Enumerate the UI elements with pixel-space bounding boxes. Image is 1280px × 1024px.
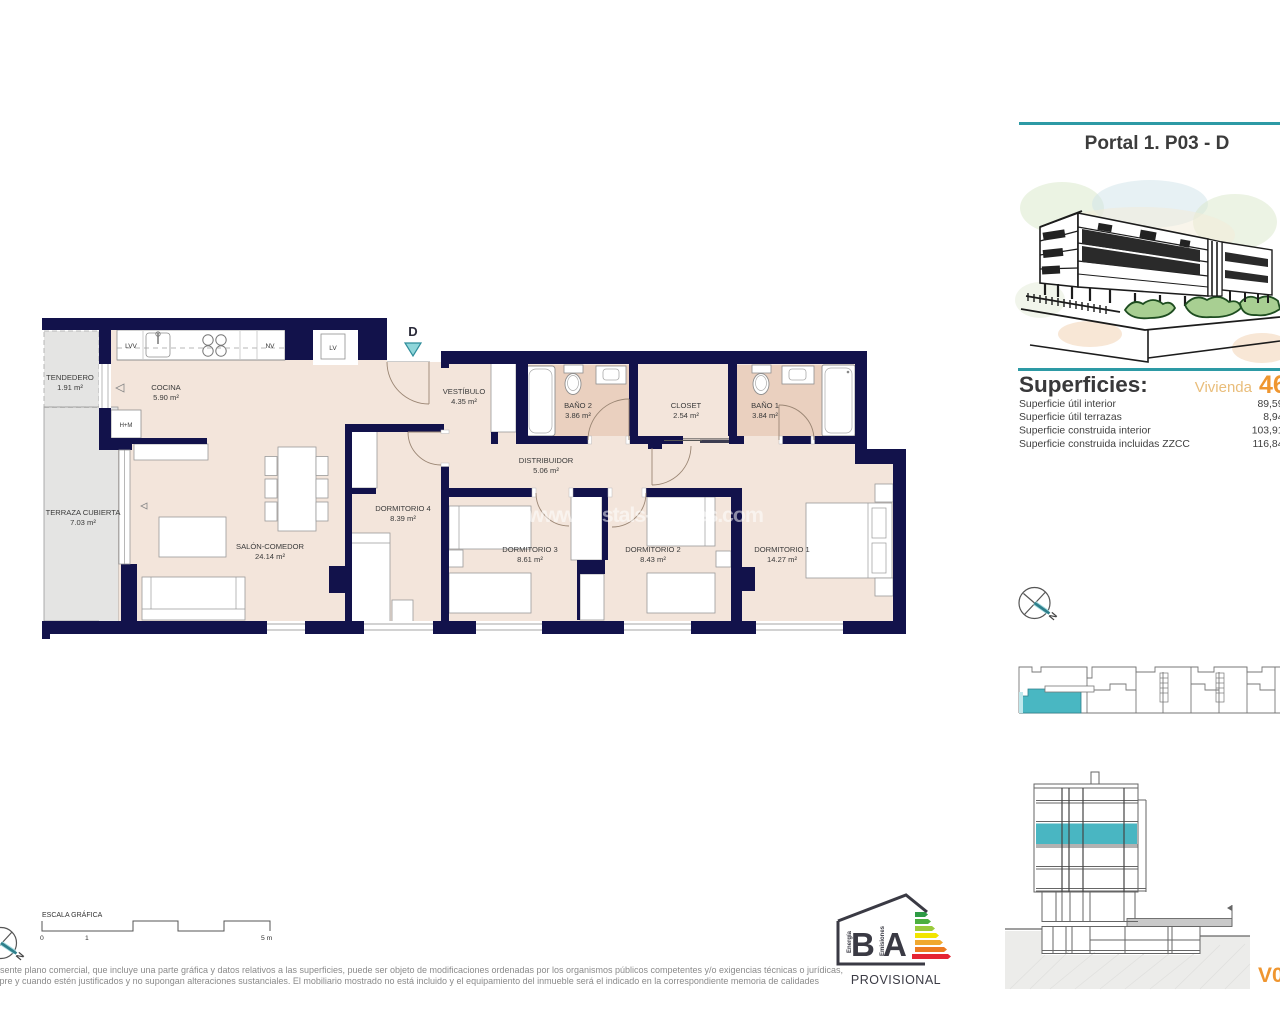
svg-text:Emisiones: Emisiones <box>880 925 886 956</box>
svg-text:resente plano comercial, que i: resente plano comercial, que incluye una… <box>0 965 843 975</box>
svg-text:BAÑO 1: BAÑO 1 <box>751 401 779 410</box>
svg-text:1: 1 <box>85 935 89 942</box>
svg-text:5.90 m²: 5.90 m² <box>153 393 179 402</box>
svg-text:3.86 m²: 3.86 m² <box>565 411 591 420</box>
svg-text:24.14 m²: 24.14 m² <box>255 552 285 561</box>
svg-text:BAÑO 2: BAÑO 2 <box>564 401 592 410</box>
svg-text:7.03 m²: 7.03 m² <box>70 518 96 527</box>
svg-text:PROVISIONAL: PROVISIONAL <box>851 973 941 987</box>
svg-text:LV: LV <box>329 345 337 352</box>
svg-text:103,91: 103,91 <box>1252 426 1280 437</box>
svg-text:5.06 m²: 5.06 m² <box>533 466 559 475</box>
svg-text:89,59: 89,59 <box>1257 399 1280 410</box>
svg-text:Vivienda: Vivienda <box>1195 379 1253 396</box>
svg-text:Superficie construida interior: Superficie construida interior <box>1019 426 1151 437</box>
svg-text:H+M: H+M <box>120 423 133 429</box>
svg-text:116,84: 116,84 <box>1252 439 1280 450</box>
svg-text:DORMITORIO 1: DORMITORIO 1 <box>754 545 810 554</box>
svg-text:1.91 m²: 1.91 m² <box>57 383 83 392</box>
svg-text:DORMITORIO 3: DORMITORIO 3 <box>502 545 558 554</box>
svg-text:SALÓN-COMEDOR: SALÓN-COMEDOR <box>236 542 304 551</box>
svg-text:Energía: Energía <box>847 930 853 953</box>
svg-text:VESTÍBULO: VESTÍBULO <box>443 387 486 396</box>
svg-text:Portal 1. P03 - D: Portal 1. P03 - D <box>1085 133 1230 154</box>
svg-text:DORMITORIO 2: DORMITORIO 2 <box>625 545 681 554</box>
svg-text:V01: V01 <box>1258 964 1280 987</box>
svg-text:ESCALA GRÁFICA: ESCALA GRÁFICA <box>42 910 103 919</box>
svg-text:mpre y cuando estén justificad: mpre y cuando estén justificados y no su… <box>0 976 819 986</box>
svg-text:NV: NV <box>265 343 275 350</box>
svg-text:Superficie útil terrazas: Superficie útil terrazas <box>1019 412 1122 423</box>
svg-text:Superficies:: Superficies: <box>1019 372 1148 397</box>
svg-text:2.54 m²: 2.54 m² <box>673 411 699 420</box>
svg-text:A: A <box>883 926 907 963</box>
svg-text:8.39 m²: 8.39 m² <box>390 514 416 523</box>
svg-text:Superficie útil interior: Superficie útil interior <box>1019 399 1117 410</box>
svg-text:LVV: LVV <box>125 343 137 350</box>
svg-text:3.84 m²: 3.84 m² <box>752 411 778 420</box>
svg-text:B: B <box>851 926 875 963</box>
svg-text:DISTRIBUIDOR: DISTRIBUIDOR <box>519 456 574 465</box>
svg-text:CLOSET: CLOSET <box>671 401 702 410</box>
svg-text:0: 0 <box>40 935 44 942</box>
svg-text:5 m: 5 m <box>261 935 273 942</box>
svg-text:4.35 m²: 4.35 m² <box>451 397 477 406</box>
svg-text:Superficie construida incluida: Superficie construida incluidas ZZCC <box>1019 439 1190 450</box>
svg-text:TERRAZA CUBIERTA: TERRAZA CUBIERTA <box>46 508 122 517</box>
svg-text:COCINA: COCINA <box>151 383 181 392</box>
svg-text:14.27 m²: 14.27 m² <box>767 555 797 564</box>
svg-text:DORMITORIO 4: DORMITORIO 4 <box>375 504 431 513</box>
svg-text:TENDEDERO: TENDEDERO <box>46 373 94 382</box>
svg-text:D: D <box>408 324 417 339</box>
svg-text:www.cristals-resales.com: www.cristals-resales.com <box>527 503 764 527</box>
svg-text:8.61 m²: 8.61 m² <box>517 555 543 564</box>
svg-text:46: 46 <box>1259 371 1280 399</box>
svg-text:8,94: 8,94 <box>1263 412 1280 423</box>
svg-text:8.43 m²: 8.43 m² <box>640 555 666 564</box>
